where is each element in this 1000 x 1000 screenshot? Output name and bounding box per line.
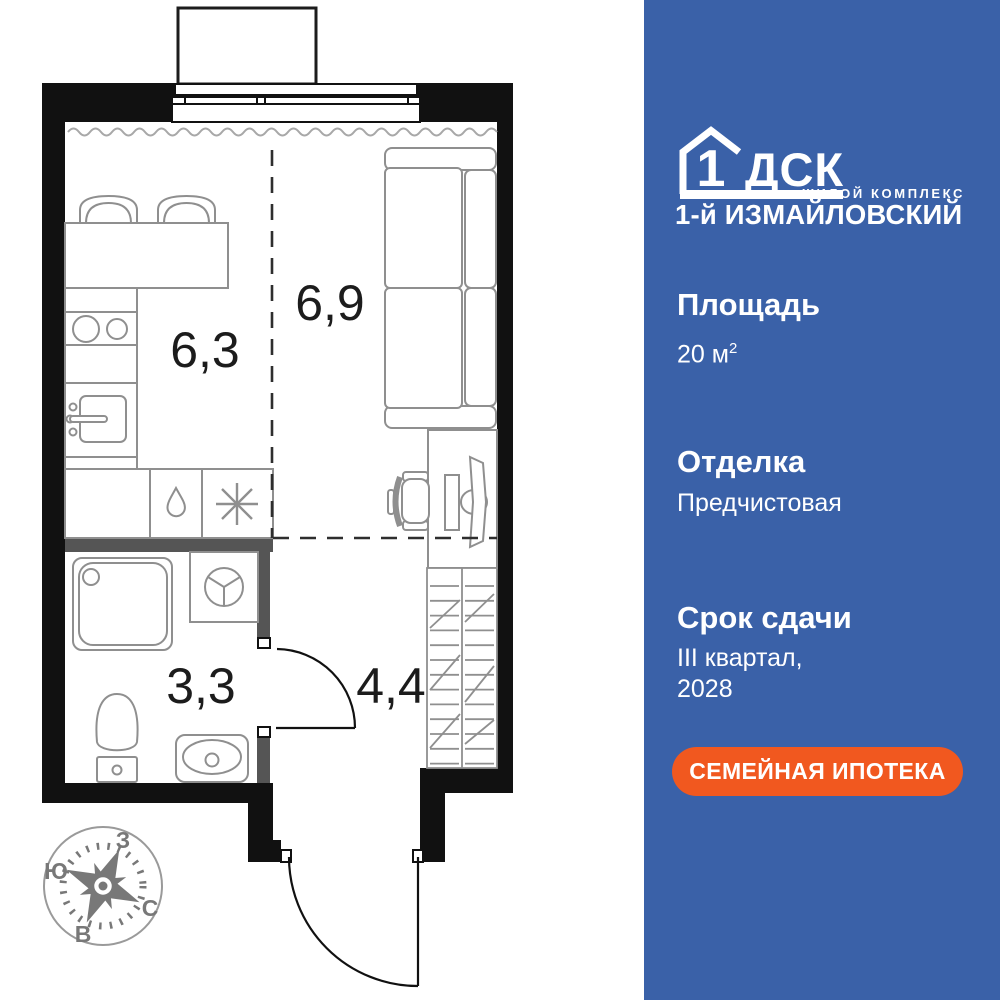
deadline-quarter: III квартал,: [677, 643, 852, 674]
compass-rose-icon: З Ю С В: [44, 827, 162, 947]
area-sup: 2: [729, 340, 737, 357]
monitor-icon: [470, 457, 486, 547]
area-number: 20 м: [677, 340, 729, 368]
table: [65, 223, 228, 288]
compass-west: З: [116, 827, 130, 853]
balcony: [178, 8, 316, 84]
stove-burner: [107, 319, 127, 339]
desk-area: [388, 430, 497, 568]
area-value: 20 м2: [677, 333, 820, 370]
apartment-card: 6,3 6,9 3,3 4,4 З Ю С В: [0, 0, 1000, 1000]
compass-north: С: [142, 895, 159, 921]
room-area-hall: 4,4: [356, 658, 426, 714]
deadline-title: Срок сдачи: [677, 602, 852, 633]
curtain-wave: [68, 129, 497, 136]
area-title: Площадь: [677, 289, 820, 320]
info-panel: 1 ДСК ЖИЛОЙ КОМПЛЕКС 1-й ИЗМАЙЛОВСКИЙ Пл…: [644, 0, 1000, 1000]
office-chair: [388, 472, 429, 530]
complex-name: 1-й ИЗМАЙЛОВСКИЙ: [675, 199, 975, 231]
kitchen-furniture: [65, 196, 273, 538]
bathroom-sink: [176, 735, 248, 782]
developer-logo: 1 ДСК ЖИЛОЙ КОМПЛЕКС: [677, 126, 969, 200]
area-block: Площадь 20 м2: [677, 289, 820, 370]
washing-machine: [190, 552, 258, 622]
wardrobe: [427, 568, 497, 768]
entrance-door: [289, 857, 418, 986]
chair-icon: [158, 196, 215, 223]
deadline-block: Срок сдачи III квартал, 2028: [677, 602, 852, 705]
logo-number: 1: [697, 140, 726, 198]
finish-value: Предчистовая: [677, 488, 842, 519]
room-area-living: 6,9: [295, 275, 365, 331]
finish-title: Отделка: [677, 446, 842, 477]
deadline-year: 2028: [677, 674, 852, 705]
family-mortgage-button[interactable]: СЕМЕЙНАЯ ИПОТЕКА: [672, 747, 963, 796]
stove-burner: [73, 316, 99, 342]
finish-block: Отделка Предчистовая: [677, 446, 842, 519]
toilet: [96, 694, 137, 782]
bathroom-door: [276, 649, 355, 728]
chair-icon: [80, 196, 137, 223]
room-area-bathroom: 3,3: [166, 658, 236, 714]
monitor-stand: [445, 475, 459, 530]
logo-tagline: ЖИЛОЙ КОМПЛЕКС: [801, 186, 965, 200]
room-area-kitchen: 6,3: [170, 322, 240, 378]
faucet: [70, 416, 107, 422]
window: [172, 84, 420, 122]
floor-plan: 6,3 6,9 3,3 4,4 З Ю С В: [0, 0, 644, 1000]
sofa: [385, 148, 496, 428]
compass-south: Ю: [44, 858, 68, 884]
compass-east: В: [75, 921, 92, 947]
asterisk-icon: [216, 483, 258, 525]
